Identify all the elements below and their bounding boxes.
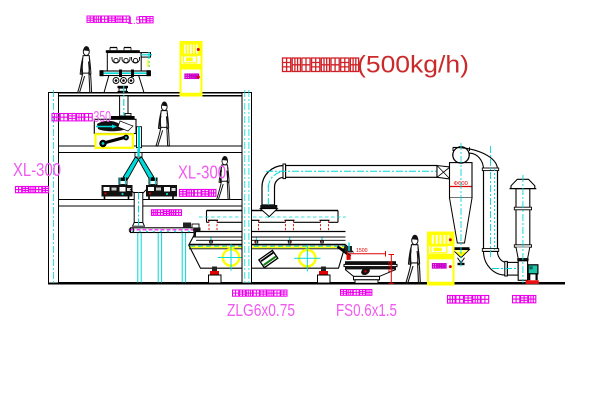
svg-text:1.5: 1.5 xyxy=(128,15,142,27)
svg-text:(500kg/h): (500kg/h) xyxy=(357,52,469,79)
svg-text:548: 548 xyxy=(388,261,395,272)
svg-text:XL-300: XL-300 xyxy=(178,163,226,183)
svg-text:FS0.6x1.5: FS0.6x1.5 xyxy=(336,300,397,320)
svg-text:350: 350 xyxy=(94,109,112,126)
svg-text:XL-300: XL-300 xyxy=(13,160,61,180)
svg-text:1500: 1500 xyxy=(356,248,368,254)
svg-text:ZLG6x0.75: ZLG6x0.75 xyxy=(227,300,295,320)
